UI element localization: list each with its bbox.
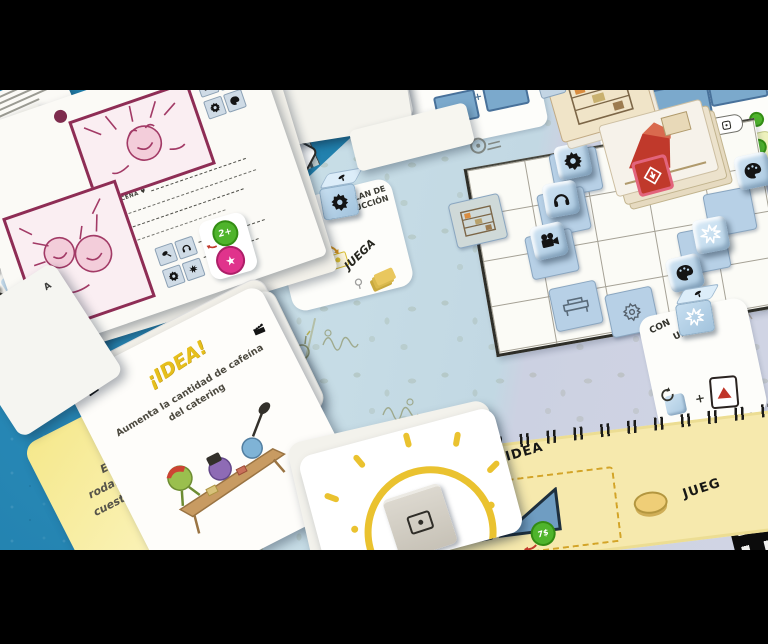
crowd-doodle: [320, 325, 360, 351]
problem-card-icon: [709, 375, 740, 409]
slot-palette: [223, 90, 247, 113]
card-slot: [705, 90, 768, 107]
die-front-face: [319, 183, 360, 221]
plus-sign: +: [694, 390, 707, 406]
sun-ray: [352, 454, 366, 469]
headphones-icon: [201, 90, 215, 93]
sun-dot: [350, 525, 359, 534]
slot-light: [182, 257, 206, 281]
film-camera-icon: [536, 228, 561, 253]
sun-dot: [487, 501, 496, 510]
boardgame-photo: ORGANIZA + REVUELVE x5 = SET: [0, 90, 768, 550]
money-fan-icon: [373, 267, 396, 286]
die-mic-light: [673, 285, 716, 336]
card-slot: [481, 90, 530, 112]
boom-mic-icon: [688, 288, 707, 301]
dice-slot-group: [196, 90, 246, 120]
problem-chip-face: [634, 157, 671, 194]
light-burst-icon: [187, 262, 201, 276]
letterboxed-photo: ORGANIZA + REVUELVE x5 = SET: [0, 0, 768, 644]
headphones-icon: [179, 241, 193, 255]
light-burst-icon: [697, 221, 725, 249]
light-burst-icon: [683, 305, 708, 330]
camera-frame-icon: [406, 510, 435, 535]
die-palette: [733, 151, 768, 191]
shelf-sketch-icon: [458, 204, 497, 239]
palette-icon: [673, 261, 697, 285]
die-icon: [721, 120, 731, 130]
sun-ray: [486, 459, 501, 474]
maroon-dot-marker: [52, 108, 69, 125]
boom-mic-icon: [159, 248, 173, 262]
gear-icon: [208, 101, 222, 115]
gear-icon: [561, 149, 585, 173]
palette-icon: [228, 94, 242, 108]
palette-icon: [741, 159, 765, 183]
die-front-face: [675, 299, 716, 336]
plus-sign: +: [473, 91, 483, 104]
hook-icon: [542, 90, 559, 92]
juega-label: JUEGA: [342, 237, 378, 273]
gear-icon: [328, 191, 350, 213]
couch-sketch-icon: [559, 292, 593, 320]
juega-partial-label: JUEG: [681, 476, 723, 502]
boom-mic-icon: [332, 171, 351, 184]
coin-stack-doodle: [632, 490, 668, 516]
diamond-arrow-icon: [640, 163, 664, 187]
sun-ray: [324, 492, 340, 503]
gear-icon: [167, 269, 181, 283]
sun-ray: [453, 431, 462, 447]
dice-slot-group: [154, 236, 204, 288]
headphones-icon: [549, 187, 572, 210]
sun-ray: [403, 432, 413, 448]
die-sound: [541, 179, 580, 218]
tiny-doodle: [350, 276, 367, 293]
die-mic-gear: [316, 169, 359, 221]
die-light: [691, 215, 731, 255]
con-label: CON: [648, 318, 672, 337]
slot-sound: [174, 236, 198, 260]
red-triangle-icon: [717, 386, 732, 398]
reference-card-label: A: [42, 281, 53, 293]
